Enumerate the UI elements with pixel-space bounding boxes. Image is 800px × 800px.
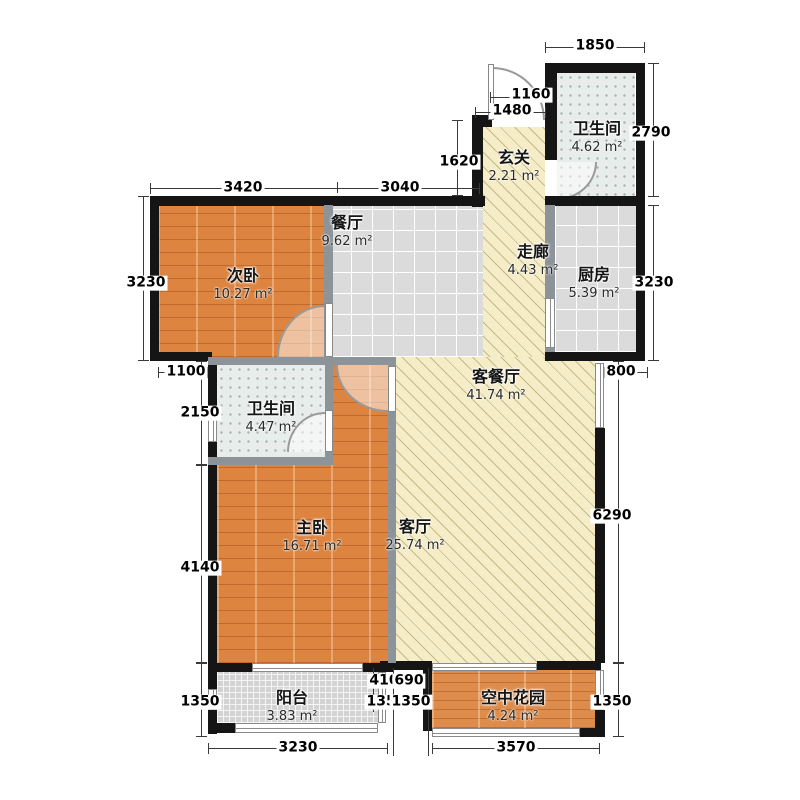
dimension-label-4140: 4140 bbox=[179, 561, 222, 576]
room-area: 5.39 m² bbox=[569, 286, 620, 303]
window bbox=[252, 663, 363, 672]
room-label-bath-top: 卫生间 4.62 m² bbox=[572, 119, 623, 157]
room-name: 空中花园 bbox=[481, 688, 545, 709]
dimension-label-690: 690 bbox=[392, 674, 425, 689]
dimension-label-1100: 1100 bbox=[165, 365, 208, 380]
wall bbox=[537, 661, 601, 670]
dimension-label-1350-right: 1350 bbox=[591, 695, 634, 710]
garden-slider bbox=[432, 663, 537, 671]
dimension-line bbox=[150, 188, 480, 189]
partition-wall bbox=[333, 357, 396, 365]
wall bbox=[208, 723, 236, 733]
bedroom2-door-leaf bbox=[325, 303, 333, 357]
dimension-label-3230-right: 3230 bbox=[633, 276, 676, 291]
window bbox=[208, 417, 217, 442]
dimension-label-2790: 2790 bbox=[630, 126, 673, 141]
room-name: 客厅 bbox=[385, 517, 444, 538]
room-name: 餐厅 bbox=[322, 213, 373, 234]
room-name: 客餐厅 bbox=[466, 367, 525, 388]
wall bbox=[150, 196, 485, 206]
room-label-garden: 空中花园 4.24 m² bbox=[481, 688, 545, 726]
dimension-label-1160: 1160 bbox=[510, 88, 553, 103]
room-area: 9.62 m² bbox=[322, 234, 373, 251]
window bbox=[432, 728, 580, 737]
room-name: 厨房 bbox=[569, 265, 620, 286]
room-name: 主卧 bbox=[282, 518, 341, 539]
room-label-dining: 餐厅 9.62 m² bbox=[322, 213, 373, 251]
room-label-kitchen: 厨房 5.39 m² bbox=[569, 265, 620, 303]
wall bbox=[545, 196, 645, 206]
dimension-tick bbox=[337, 182, 338, 193]
dimension-label-1350-left: 1350 bbox=[179, 695, 222, 710]
dimension-label-1850: 1850 bbox=[574, 39, 617, 54]
room-label-corridor: 走廊 4.43 m² bbox=[508, 242, 559, 280]
wall bbox=[580, 728, 605, 737]
room-name: 卫生间 bbox=[572, 119, 623, 140]
room-label-bath-mid: 卫生间 4.47 m² bbox=[246, 399, 297, 437]
partition-wall bbox=[208, 457, 333, 465]
room-label-balcony: 阳台 3.83 m² bbox=[267, 688, 318, 726]
kitchen-door-gap bbox=[545, 298, 555, 348]
wall bbox=[545, 63, 557, 160]
room-name: 玄关 bbox=[489, 148, 540, 169]
dimension-label-3230-left: 3230 bbox=[125, 276, 168, 291]
dimension-label-3570: 3570 bbox=[495, 741, 538, 756]
room-label-master: 主卧 16.71 m² bbox=[282, 518, 341, 556]
dimension-label-3040: 3040 bbox=[379, 181, 422, 196]
dimension-label-6290: 6290 bbox=[591, 509, 634, 524]
dimension-label-1620: 1620 bbox=[438, 155, 481, 170]
wall bbox=[545, 63, 645, 73]
room-area: 25.74 m² bbox=[385, 538, 444, 555]
wall bbox=[595, 428, 605, 663]
extension-line bbox=[428, 668, 429, 756]
master-door-leaf bbox=[388, 366, 396, 412]
dimension-label-1350-mid-b: 1350 bbox=[390, 695, 433, 710]
wall bbox=[150, 352, 212, 361]
dimension-label-1480: 1480 bbox=[491, 104, 534, 119]
partition-wall bbox=[208, 357, 333, 365]
wall bbox=[208, 663, 253, 672]
wall bbox=[636, 63, 645, 361]
room-area: 16.71 m² bbox=[282, 539, 341, 556]
room-name: 阳台 bbox=[267, 688, 318, 709]
dimension-label-2150: 2150 bbox=[179, 406, 222, 421]
room-name: 走廊 bbox=[508, 242, 559, 263]
room-name: 卫生间 bbox=[246, 399, 297, 420]
room-label-bedroom2: 次卧 10.27 m² bbox=[213, 266, 272, 304]
room-label-living: 客厅 25.74 m² bbox=[385, 517, 444, 555]
room-area: 4.47 m² bbox=[246, 420, 297, 437]
wall bbox=[208, 357, 217, 663]
room-label-living-dining: 客餐厅 41.74 m² bbox=[466, 367, 525, 405]
dimension-label-800: 800 bbox=[604, 365, 637, 380]
room-area: 41.74 m² bbox=[466, 388, 525, 405]
dimension-label-3420: 3420 bbox=[222, 181, 265, 196]
wall bbox=[545, 352, 645, 361]
room-area: 4.24 m² bbox=[481, 709, 545, 726]
room-label-entry: 玄关 2.21 m² bbox=[489, 148, 540, 186]
room-area: 2.21 m² bbox=[489, 169, 540, 186]
floor-plan: 3420 3040 1160 1480 1850 2790 1620 3230 … bbox=[0, 0, 800, 800]
dimension-label-3230-bottom: 3230 bbox=[277, 741, 320, 756]
room-area: 10.27 m² bbox=[213, 287, 272, 304]
room-name: 次卧 bbox=[213, 266, 272, 287]
room-area: 3.83 m² bbox=[267, 709, 318, 726]
bath-mid-door-leaf bbox=[325, 410, 333, 452]
window bbox=[595, 363, 604, 428]
room-area: 4.43 m² bbox=[508, 263, 559, 280]
room-area: 4.62 m² bbox=[572, 140, 623, 157]
